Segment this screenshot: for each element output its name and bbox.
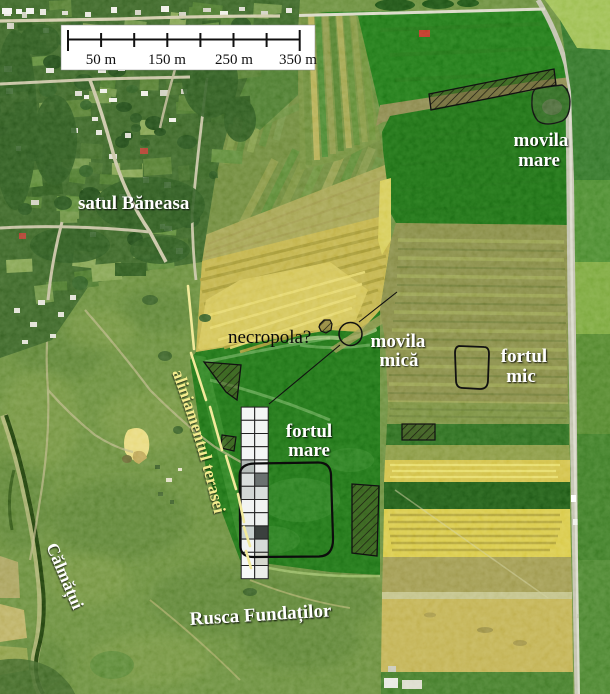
svg-text:mică: mică	[379, 350, 419, 371]
svg-text:movila: movila	[514, 130, 569, 151]
svg-text:350 m: 350 m	[279, 52, 317, 68]
svg-text:satul Băneasa: satul Băneasa	[78, 193, 190, 214]
svg-text:movila: movila	[371, 331, 426, 352]
svg-text:mare: mare	[288, 440, 330, 461]
svg-text:250 m: 250 m	[215, 52, 253, 68]
svg-text:150 m: 150 m	[148, 52, 186, 68]
svg-text:fortul: fortul	[501, 346, 547, 367]
svg-text:mare: mare	[518, 150, 560, 171]
svg-text:mic: mic	[506, 366, 536, 387]
svg-text:50 m: 50 m	[86, 52, 117, 68]
svg-text:necropola?: necropola?	[228, 327, 311, 348]
svg-text:fortul: fortul	[286, 421, 332, 442]
